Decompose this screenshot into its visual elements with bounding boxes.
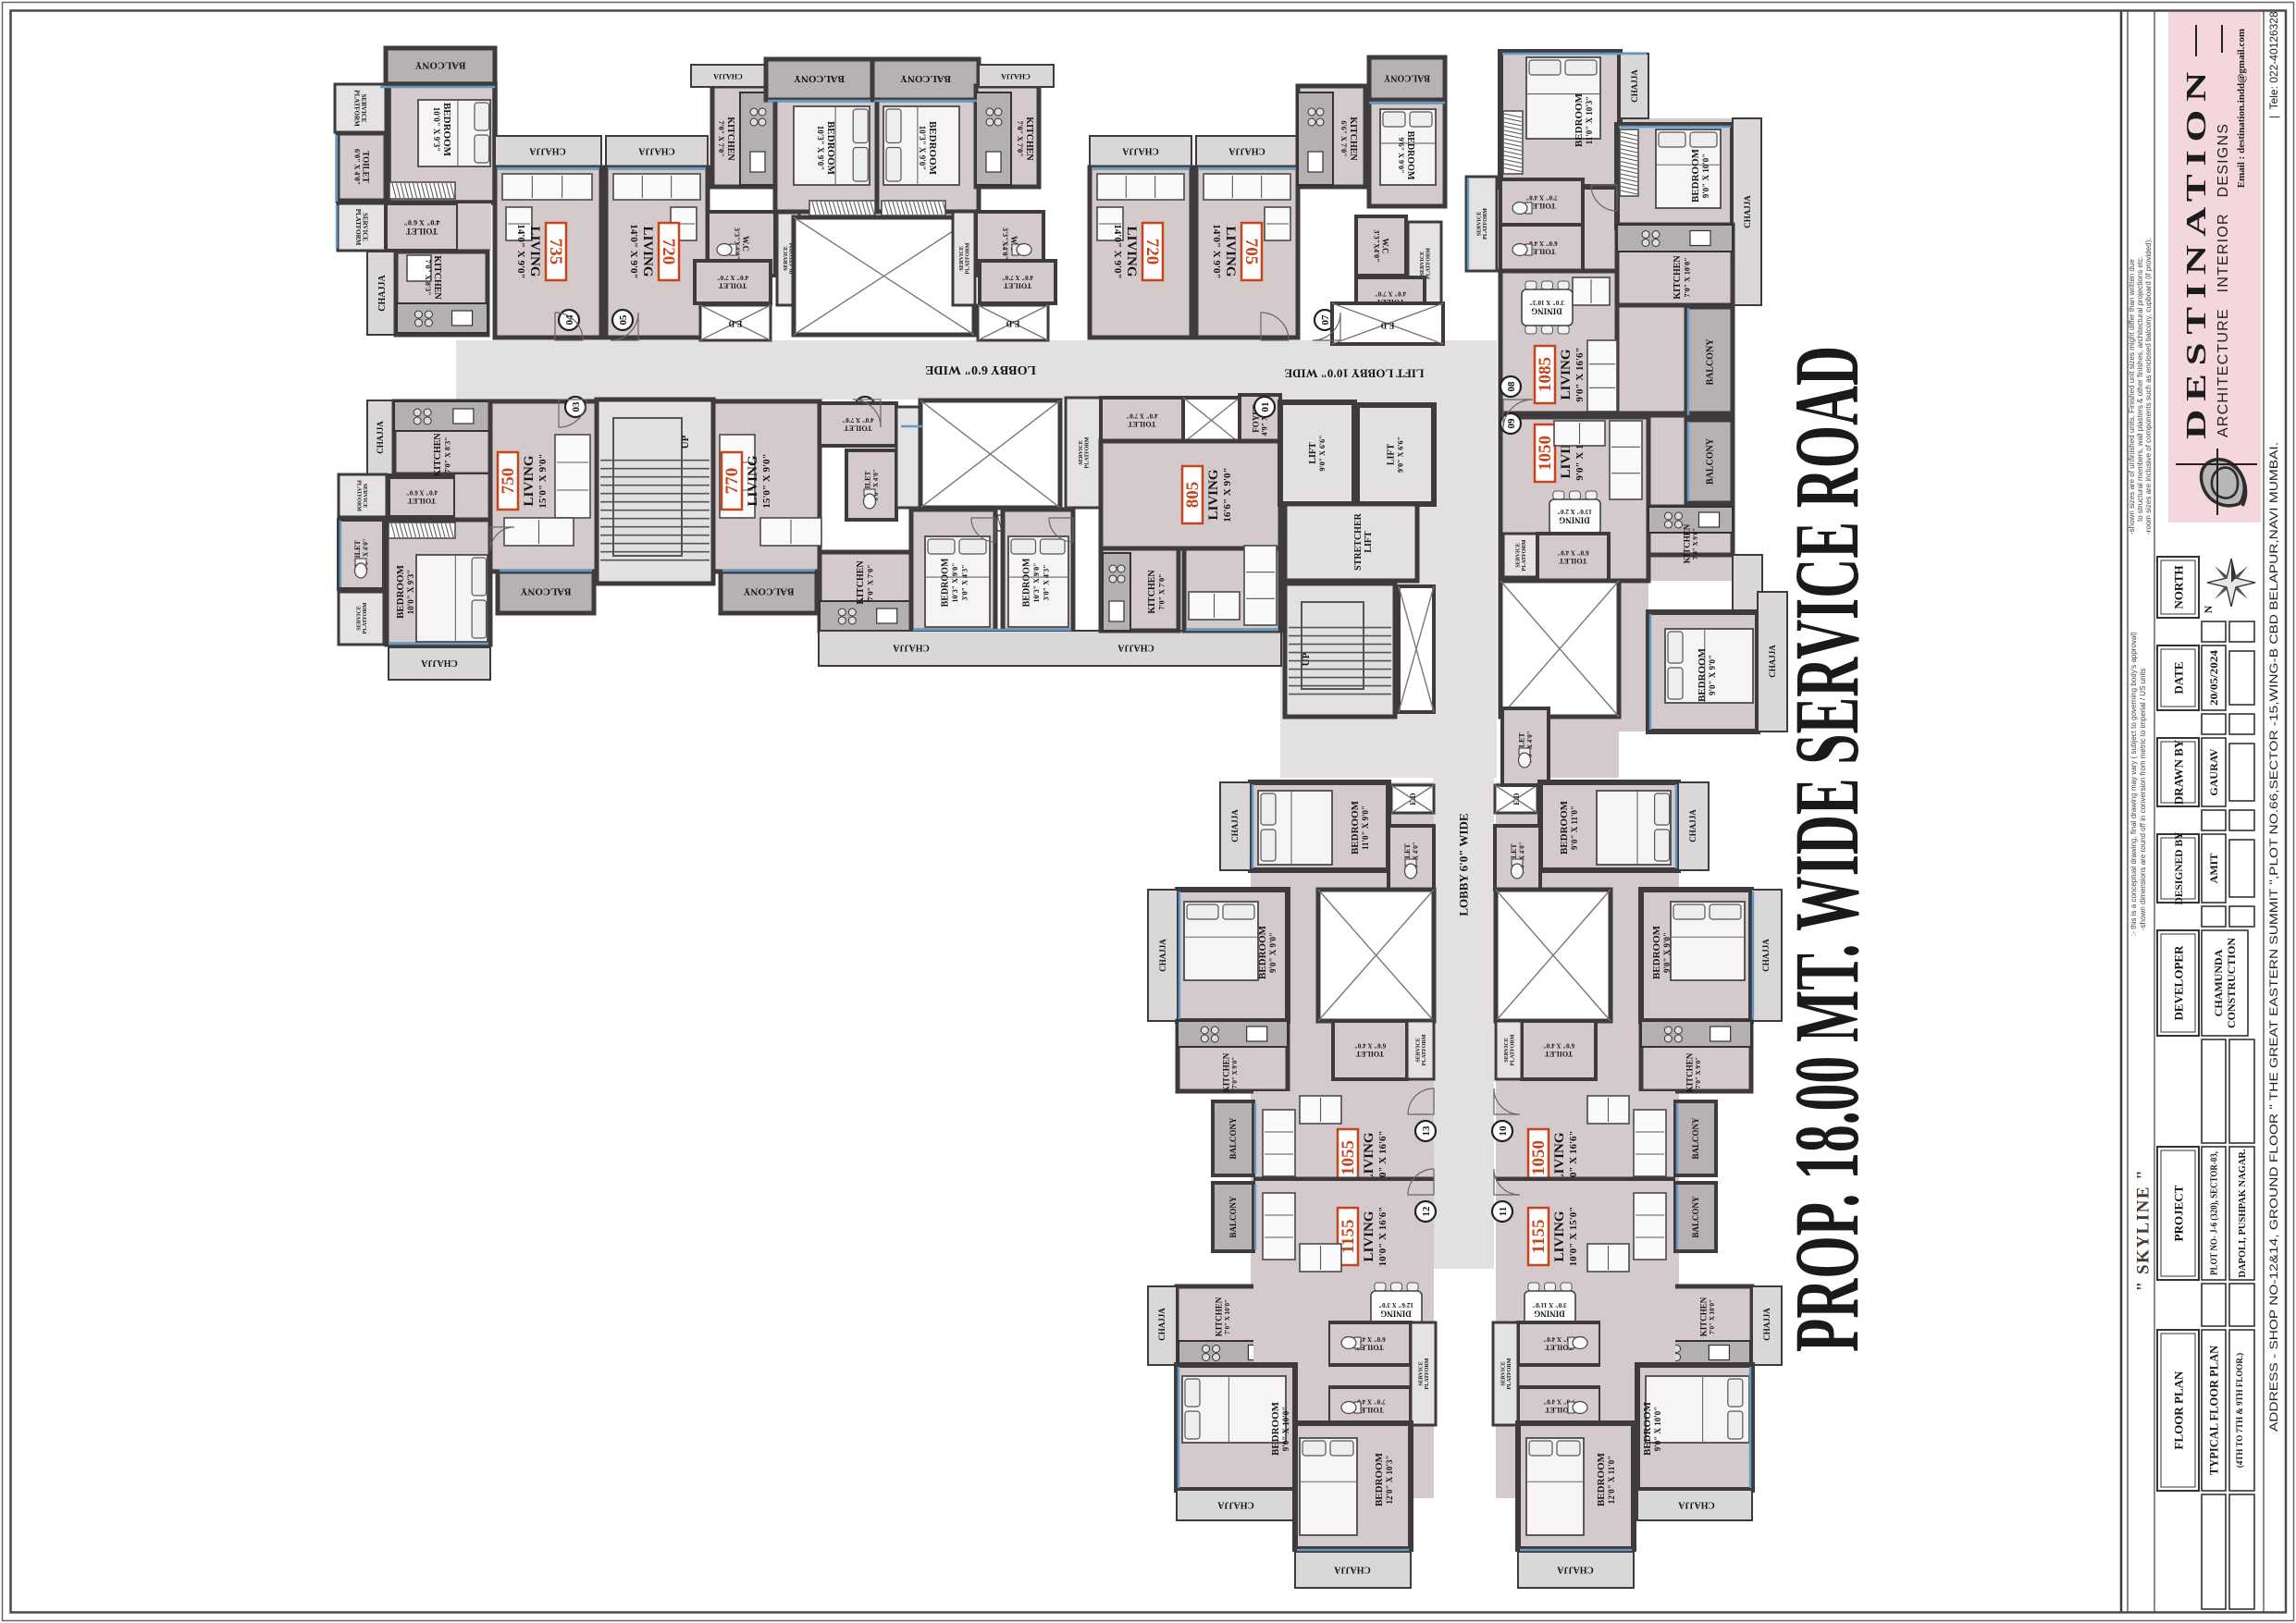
svg-text:UP: UP <box>680 435 691 449</box>
svg-text:CHAJJA: CHAJJA <box>713 72 743 80</box>
svg-text:KITCHEN7'0" X 7'0": KITCHEN7'0" X 7'0" <box>1147 570 1166 614</box>
svg-text:TOILET4'0" X 6'0": TOILET4'0" X 6'0" <box>406 489 438 505</box>
svg-text:SERVICEPLATFORM: SERVICEPLATFORM <box>1079 436 1090 468</box>
svg-text:LOBBY 6'0" WIDE: LOBBY 6'0" WIDE <box>1457 813 1471 916</box>
svg-text:BALCONY: BALCONY <box>794 73 845 84</box>
svg-text:E.D: E.D <box>1380 321 1394 330</box>
svg-text:BALCONY: BALCONY <box>1228 1196 1238 1238</box>
svg-text:720: 720 <box>1142 239 1162 265</box>
svg-text:770: 770 <box>722 468 742 495</box>
svg-text:805: 805 <box>1183 482 1203 509</box>
svg-text:SERVICEPLATFORM: SERVICEPLATFORM <box>1420 248 1431 279</box>
svg-text:LIVING: LIVING <box>1223 226 1238 277</box>
svg-text:UP: UP <box>1301 652 1312 666</box>
svg-text:CHAJJA: CHAJJA <box>1157 1308 1167 1341</box>
svg-text:CHAJJA: CHAJJA <box>1001 72 1031 80</box>
svg-text:SERVICEPLATFORM: SERVICEPLATFORM <box>1504 1034 1515 1065</box>
svg-text:05: 05 <box>618 314 629 326</box>
svg-text:NORTH: NORTH <box>2172 565 2186 609</box>
svg-text:TOILET6'0" X 4'0": TOILET6'0" X 4'0" <box>352 149 370 185</box>
svg-text:1085: 1085 <box>1536 357 1555 392</box>
svg-text:CHAJJA: CHAJJA <box>1678 1500 1715 1510</box>
svg-text:DINING3'0" X 11'0": DINING3'0" X 11'0" <box>1532 1301 1566 1318</box>
svg-text:BEDROOM9'0" X 9'0": BEDROOM9'0" X 9'0" <box>1257 925 1278 979</box>
svg-text:14'0" X 9'0": 14'0" X 9'0" <box>1211 224 1222 278</box>
svg-text:CHAJJA: CHAJJA <box>1630 69 1639 103</box>
svg-text:KITCHEN7'0" X 10'0": KITCHEN7'0" X 10'0" <box>1215 1297 1231 1336</box>
svg-text:DINING12'6" X 3'0": DINING12'6" X 3'0" <box>1378 1301 1413 1318</box>
svg-text:CHAJJA: CHAJJA <box>1228 146 1265 156</box>
svg-text:1055: 1055 <box>1339 1140 1358 1175</box>
svg-text:CHAJJA: CHAJJA <box>1117 643 1154 653</box>
svg-text:DINING3'0" X 10'3": DINING3'0" X 10'3" <box>1529 299 1564 315</box>
svg-text::- this is a conceptual drawin: :- this is a conceptual drawing, final d… <box>2129 632 2138 936</box>
svg-text:LIVING: LIVING <box>1362 1211 1376 1261</box>
svg-text:CHAJJA: CHAJJA <box>1761 939 1771 972</box>
svg-text:10: 10 <box>1498 1125 1509 1137</box>
svg-text:LIVING: LIVING <box>1362 1132 1376 1183</box>
svg-text:KITCHEN7'0" X 9'0": KITCHEN7'0" X 9'0" <box>1685 1052 1702 1092</box>
svg-text:LIVING: LIVING <box>1559 349 1574 400</box>
svg-text:E.D: E.D <box>1512 793 1521 805</box>
svg-text:TOILET4'0" X 7'0": TOILET4'0" X 7'0" <box>717 274 748 289</box>
svg-text:CHAJJA: CHAJJA <box>893 643 930 653</box>
svg-text:KITCHEN7'0" X 7'0": KITCHEN7'0" X 7'0" <box>1016 117 1034 161</box>
svg-text:BEDROOM10'3" X 9'0": BEDROOM10'3" X 9'0" <box>816 121 836 176</box>
svg-text:CHAJJA: CHAJJA <box>421 658 458 668</box>
svg-text:BEDROOM12'0" X 11'0": BEDROOM12'0" X 11'0" <box>1596 1452 1616 1506</box>
svg-text:LIVING: LIVING <box>1552 1211 1567 1261</box>
svg-text:PROJECT: PROJECT <box>2172 1185 2186 1241</box>
svg-text:1050: 1050 <box>1536 436 1555 471</box>
svg-text:07: 07 <box>1320 314 1331 326</box>
svg-text:10'0" X 15'0": 10'0" X 15'0" <box>1568 1207 1579 1267</box>
svg-text:15'0" X 9'0": 15'0" X 9'0" <box>761 453 772 508</box>
svg-text:BEDROOM10'3" X 9'0"3'0" X 4'3": BEDROOM10'3" X 9'0"3'0" X 4'3" <box>941 558 969 607</box>
svg-text:(4TH TO 7TH & 9TH FLOOR.): (4TH TO 7TH & 9TH FLOOR.) <box>2235 1353 2244 1468</box>
svg-text:15'0" X 9'0": 15'0" X 9'0" <box>537 453 549 508</box>
svg-text:CHAJJA: CHAJJA <box>1122 146 1159 156</box>
svg-text:LIFT LOBBY 10'0" WIDE: LIFT LOBBY 10'0" WIDE <box>1284 367 1424 381</box>
svg-text:DINING13'0" X 2'0": DINING13'0" X 2'0" <box>1557 508 1592 524</box>
svg-text:CHAJJA: CHAJJA <box>1217 1500 1254 1510</box>
svg-text:BEDROOM9'0" X 10'0": BEDROOM9'0" X 10'0" <box>1642 1401 1662 1456</box>
svg-text:KITCHEN7'0" X 8'3": KITCHEN7'0" X 8'3" <box>433 433 451 477</box>
svg-text:11: 11 <box>1498 1207 1509 1216</box>
svg-text:TOILET4'0" X 7'0": TOILET4'0" X 7'0" <box>1002 274 1033 289</box>
svg-text:BEDROOM9'0" X 9'0": BEDROOM9'0" X 9'0" <box>1651 925 1672 979</box>
svg-text:LIVING: LIVING <box>527 226 542 277</box>
svg-text:CHAJJA: CHAJJA <box>377 275 388 312</box>
svg-text:09: 09 <box>1506 418 1517 429</box>
svg-text:LIVING: LIVING <box>746 455 760 506</box>
svg-text:E.D: E.D <box>1409 793 1417 805</box>
svg-text:BALCONY: BALCONY <box>1228 1117 1238 1160</box>
svg-text:SERVICEPLATFORM: SERVICEPLATFORM <box>959 242 970 274</box>
svg-text:BEDROOM10'3" X 9'0": BEDROOM10'3" X 9'0" <box>918 121 938 176</box>
svg-text:KITCHEN7'0" X 7'0": KITCHEN7'0" X 7'0" <box>717 117 735 161</box>
svg-text:SERVICEPLATFORM: SERVICEPLATFORM <box>1515 539 1526 571</box>
svg-text:DRAWN BY: DRAWN BY <box>2172 739 2186 805</box>
svg-text:BEDROOM9'0" X 10'0": BEDROOM9'0" X 10'0" <box>1270 1401 1290 1456</box>
svg-text:BEDROOM10'0" X 9'3": BEDROOM10'0" X 9'3" <box>432 103 452 157</box>
svg-text:SERVICEPLATFORM: SERVICEPLATFORM <box>1476 208 1487 240</box>
svg-text:TOILET6'0" X 4'0": TOILET6'0" X 4'0" <box>1557 549 1588 565</box>
svg-text:CHAJJA: CHAJJA <box>1688 809 1697 842</box>
svg-text:BEDROOM9'0" X 10'0": BEDROOM9'0" X 10'0" <box>1690 148 1710 203</box>
svg-text:BALCONY: BALCONY <box>1706 437 1716 485</box>
svg-text:BALCONY: BALCONY <box>520 586 571 597</box>
svg-text:-shown sizes are of unfinished: -shown sizes are of unfinished units. Fi… <box>2128 259 2136 535</box>
svg-text:-room sizes are inclusive of c: -room sizes are inclusive of components … <box>2144 239 2153 535</box>
svg-text:CHAJJA: CHAJJA <box>376 421 385 454</box>
svg-text:BEDROOM9'6" X 9'0": BEDROOM9'6" X 9'0" <box>1397 131 1415 180</box>
svg-text:9'0" X 16'6": 9'0" X 16'6" <box>1574 347 1586 401</box>
svg-text:SERVICEPLATFORM: SERVICEPLATFORM <box>354 209 369 246</box>
svg-text:LIVING: LIVING <box>1552 1132 1567 1183</box>
svg-text:BALCONY: BALCONY <box>743 586 794 597</box>
svg-text:KITCHEN7'0" X 10'0": KITCHEN7'0" X 10'0" <box>1673 255 1691 300</box>
svg-text:TOILET4'0" X 7'0": TOILET4'0" X 7'0" <box>842 416 873 432</box>
svg-text:CHAJJA: CHAJJA <box>529 146 566 156</box>
svg-text:03: 03 <box>571 401 582 412</box>
svg-text:| Tele: 022-40126328: | Tele: 022-40126328 <box>2267 11 2280 118</box>
svg-text:KITCHEN7'0" X 9'0": KITCHEN7'0" X 9'0" <box>1222 1052 1239 1092</box>
svg-text:TOILET6'0" X 4'0": TOILET6'0" X 4'0" <box>1354 1042 1386 1058</box>
svg-text:1155: 1155 <box>1529 1220 1549 1254</box>
svg-text:ADDRESS - SHOP NO-12&14, GROUN: ADDRESS - SHOP NO-12&14, GROUND FLOOR " … <box>2267 442 2280 1432</box>
svg-text:to structural members, wall pl: to structural members, wall plasters & o… <box>2136 256 2144 522</box>
svg-text:SERVICEPLATFORM: SERVICEPLATFORM <box>1500 1358 1512 1389</box>
svg-text:DESTINATION: DESTINATION <box>2179 64 2212 439</box>
svg-text:BALCONY: BALCONY <box>414 60 465 71</box>
svg-text:PROP. 18.00 MT. WIDE SERVICE R: PROP. 18.00 MT. WIDE SERVICE ROAD <box>1775 346 1878 1352</box>
svg-text:BEDROOM9'0" X 9'0": BEDROOM9'0" X 9'0" <box>1697 647 1717 702</box>
svg-text:BALCONY: BALCONY <box>1691 1196 1700 1238</box>
svg-text:CHAJJA: CHAJJA <box>1743 195 1752 228</box>
svg-text:720: 720 <box>659 239 678 265</box>
svg-text:TYPICAL FLOOR PLAN: TYPICAL FLOOR PLAN <box>2207 1346 2220 1475</box>
svg-text:SERVICEPLATFORM: SERVICEPLATFORM <box>356 480 367 511</box>
svg-text:LOBBY 6'0" WIDE: LOBBY 6'0" WIDE <box>925 363 1036 376</box>
svg-text:CHAMUNDACONSTRUCTION: CHAMUNDACONSTRUCTION <box>2212 938 2238 1028</box>
svg-text:KITCHEN6'6" X 7'0": KITCHEN6'6" X 7'0" <box>1339 117 1358 161</box>
svg-text:14'0" X 9'0": 14'0" X 9'0" <box>515 224 526 278</box>
svg-text:TOILET4'0" X 7'0": TOILET4'0" X 7'0" <box>1126 412 1157 428</box>
svg-text:CHAJJA: CHAJJA <box>1557 1565 1594 1575</box>
svg-text:KITCHEN7'0" X 9'0": KITCHEN7'0" X 9'0" <box>1683 523 1699 563</box>
svg-text:LIVING: LIVING <box>1206 469 1221 520</box>
svg-text:N: N <box>2202 605 2215 613</box>
svg-text:BEDROOM11'0" X 10'3": BEDROOM11'0" X 10'3" <box>1574 92 1594 147</box>
svg-text:DATE: DATE <box>2172 661 2186 694</box>
svg-text:" SKYLINE ": " SKYLINE " <box>2134 1169 2154 1292</box>
svg-text:FLOOR PLAN: FLOOR PLAN <box>2172 1371 2186 1449</box>
svg-text:BALCONY: BALCONY <box>900 73 951 84</box>
svg-text:SERVICEPLATFORM: SERVICEPLATFORM <box>356 602 367 633</box>
svg-text:LIVING: LIVING <box>522 455 537 506</box>
svg-text:12: 12 <box>1421 1206 1432 1217</box>
svg-text:BEDROOM12'0" X 10'3": BEDROOM12'0" X 10'3" <box>1374 1452 1394 1506</box>
svg-text:CHAJJA: CHAJJA <box>1762 1308 1771 1341</box>
svg-text:KITCHEN7'0" X 7'0": KITCHEN7'0" X 7'0" <box>856 560 874 605</box>
svg-text:14'0" X 9'0": 14'0" X 9'0" <box>628 224 639 278</box>
svg-text:16'6" X 9'0": 16'6" X 9'0" <box>1222 467 1233 522</box>
svg-text:705: 705 <box>1241 239 1261 265</box>
svg-text:SERVICEPLATFORM: SERVICEPLATFORM <box>1418 1358 1429 1389</box>
svg-text:SERVICEPLATFORM: SERVICEPLATFORM <box>352 90 367 127</box>
svg-text:1050: 1050 <box>1529 1140 1549 1175</box>
svg-text:TOILET6'0" X 4'0": TOILET6'0" X 4'0" <box>1543 1042 1574 1058</box>
svg-text:BEDROOM11'0" X 9'0": BEDROOM11'0" X 9'0" <box>1350 800 1370 855</box>
svg-text:PLOT NO- J-6 (320), SECTOR-03: PLOT NO- J-6 (320), SECTOR-03, <box>2210 1151 2220 1275</box>
svg-text:BALCONY: BALCONY <box>1691 1117 1700 1160</box>
svg-text:KITCHEN7'0" X 8'3": KITCHEN7'0" X 8'3" <box>424 255 442 300</box>
svg-text:E.D: E.D <box>728 319 742 328</box>
svg-text:KITCHEN7'0" X 10'0": KITCHEN7'0" X 10'0" <box>1699 1297 1716 1336</box>
svg-text:BALCONY: BALCONY <box>1383 73 1430 83</box>
svg-text:TOILET4'0" X 6'0": TOILET4'0" X 6'0" <box>403 218 439 236</box>
svg-text:DAPOLI, PUSHPAK NAGAR.: DAPOLI, PUSHPAK NAGAR. <box>2238 1149 2248 1278</box>
svg-text:LIVING: LIVING <box>1124 226 1139 277</box>
svg-text:14'0" X 9'0": 14'0" X 9'0" <box>1112 224 1123 278</box>
svg-text:DEVELOPER: DEVELOPER <box>2172 945 2186 1021</box>
svg-text:LIVING: LIVING <box>640 226 655 277</box>
svg-text:SERVICEPLATFORM: SERVICEPLATFORM <box>1415 1034 1426 1065</box>
svg-text:E.D: E.D <box>1006 319 1019 328</box>
svg-text:CHAJJA: CHAJJA <box>1158 939 1167 972</box>
svg-text:BEDROOM10'3" X 9'0"3'0" X 4'3": BEDROOM10'3" X 9'0"3'0" X 4'3" <box>1022 558 1051 607</box>
svg-text:Email : destination.indd@gmail: Email : destination.indd@gmail.com <box>2236 29 2247 188</box>
svg-text:10'0" X 16'6": 10'0" X 16'6" <box>1377 1207 1389 1267</box>
svg-text:DESIGNED BY: DESIGNED BY <box>2174 831 2185 905</box>
svg-text:ARCHITECTURE INTERIOR DESI: ARCHITECTURE INTERIOR DESIGNS <box>2216 123 2231 437</box>
svg-text:BALCONY: BALCONY <box>1706 338 1716 386</box>
svg-text:BEDROOM9'0" X 11'0": BEDROOM9'0" X 11'0" <box>1559 800 1579 855</box>
svg-text:CHAJJA: CHAJJA <box>1230 809 1240 842</box>
svg-text:20/05/2024: 20/05/2024 <box>2207 650 2220 706</box>
svg-text:-shown dimensions are round of: -shown dimensions are round off in conve… <box>2139 668 2147 930</box>
svg-text:01: 01 <box>1260 402 1271 412</box>
svg-text:735: 735 <box>546 239 565 265</box>
svg-text:CHAJJA: CHAJJA <box>638 146 675 156</box>
svg-text:750: 750 <box>499 468 518 495</box>
svg-text:GAURAV: GAURAV <box>2207 748 2220 795</box>
svg-text:CHAJJA: CHAJJA <box>1334 1565 1371 1575</box>
svg-text:AMIT: AMIT <box>2207 854 2220 884</box>
svg-text:08: 08 <box>1506 381 1517 392</box>
svg-text:13: 13 <box>1421 1125 1432 1137</box>
svg-text:BEDROOM10'0" X 9'3": BEDROOM10'0" X 9'3" <box>395 564 415 619</box>
